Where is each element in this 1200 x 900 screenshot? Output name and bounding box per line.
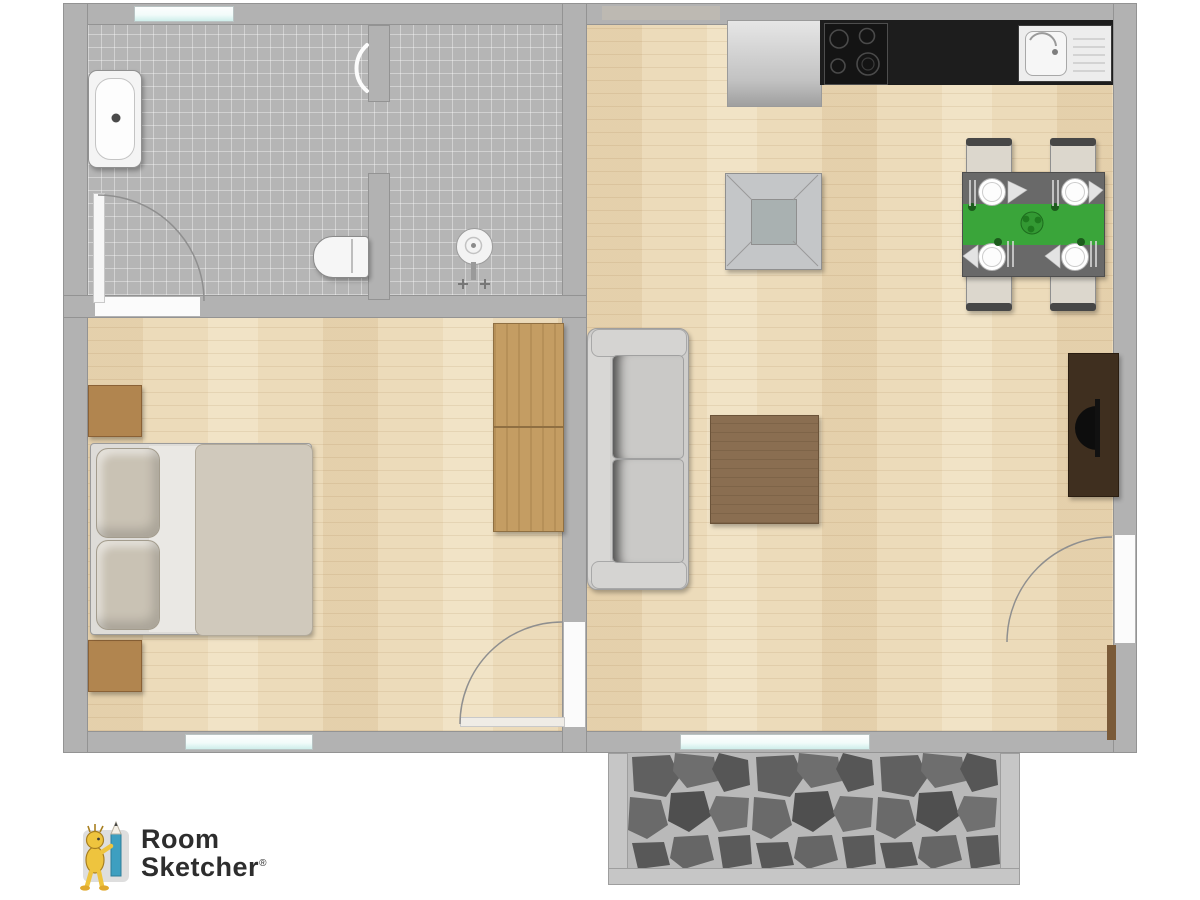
patio-left-wall <box>608 753 628 885</box>
kitchen-high-window <box>602 6 720 20</box>
registered-mark: ® <box>259 858 267 869</box>
tv-screen <box>1095 399 1100 457</box>
mascot-head <box>87 832 104 849</box>
bathroom-door-opening <box>95 297 200 316</box>
kitchen-sink-basin <box>1025 31 1067 76</box>
bathtub <box>88 70 142 168</box>
sofa-armrest-bottom <box>591 561 687 589</box>
bed-pillow-bottom <box>96 540 160 630</box>
toilet <box>313 236 369 278</box>
entry-door-opening <box>1115 535 1135 643</box>
patio-right-wall <box>1000 753 1020 885</box>
roomsketcher-wordmark: Room Sketcher® <box>141 826 267 881</box>
sofa-backrest <box>588 335 610 583</box>
coffee-table <box>710 415 819 524</box>
chair-backrest <box>1050 303 1096 311</box>
plate <box>978 178 1006 206</box>
roomsketcher-logo: Room Sketcher® <box>75 818 295 898</box>
chair-backrest <box>1050 138 1096 146</box>
wardrobe <box>493 323 564 532</box>
bathroom-window <box>134 6 234 22</box>
wall-left <box>63 3 88 753</box>
floor-plan: Room Sketcher® <box>0 0 1200 900</box>
logo-line1: Room <box>141 826 267 854</box>
table-runner <box>963 204 1104 245</box>
bathtub-basin <box>95 78 135 160</box>
bathroom-partition-bottom <box>368 173 390 300</box>
nightstand-top <box>88 385 142 437</box>
dining-chair-bottom-right <box>1050 272 1096 311</box>
bed-pillow-top <box>96 448 160 538</box>
living-sliding-door <box>680 734 870 750</box>
chair-backrest <box>966 138 1012 146</box>
roomsketcher-mascot <box>75 818 137 894</box>
chair-backrest <box>966 303 1012 311</box>
mascot-hair <box>88 824 103 832</box>
bedroom-door-leaf <box>460 717 565 727</box>
bedroom-window <box>185 734 313 750</box>
double-bed <box>90 443 312 635</box>
nightstand-bottom <box>88 640 142 692</box>
plate <box>1061 178 1089 206</box>
cooktop <box>824 23 888 85</box>
kitchen-square-table <box>725 173 822 270</box>
sofa <box>587 328 689 590</box>
mascot-foot <box>99 885 109 890</box>
wardrobe-door-seam <box>494 426 563 428</box>
tv-cabinet <box>1068 353 1119 497</box>
bedroom-door-opening <box>564 622 585 727</box>
bathroom-partition-top <box>368 25 390 102</box>
bathroom-door-leaf <box>93 193 105 303</box>
mascot-eye <box>97 838 100 841</box>
dining-chair-bottom-left <box>966 272 1012 311</box>
tv-stand-base <box>1075 406 1097 450</box>
flagstone-pattern <box>628 753 1000 868</box>
sofa-armrest-top <box>591 329 687 357</box>
sofa-cushion-bottom <box>612 459 684 563</box>
plate <box>978 243 1006 271</box>
mascot-foot <box>80 885 90 890</box>
sofa-cushion-top <box>612 355 684 459</box>
plate <box>1061 243 1089 271</box>
kitchen-sink-drainer <box>1073 34 1105 72</box>
patio-bottom-wall <box>608 868 1020 885</box>
kitchen-square-table-inset <box>751 199 797 245</box>
kitchen-sink-unit <box>1018 25 1112 82</box>
fridge-appliance <box>727 20 822 107</box>
pencil <box>111 834 121 876</box>
pedestal-sink <box>456 228 493 265</box>
bed-duvet <box>195 444 313 636</box>
logo-line2: Sketcher® <box>141 854 267 882</box>
entry-door-leaf <box>1107 645 1116 740</box>
patio-flagstones <box>628 753 1000 868</box>
